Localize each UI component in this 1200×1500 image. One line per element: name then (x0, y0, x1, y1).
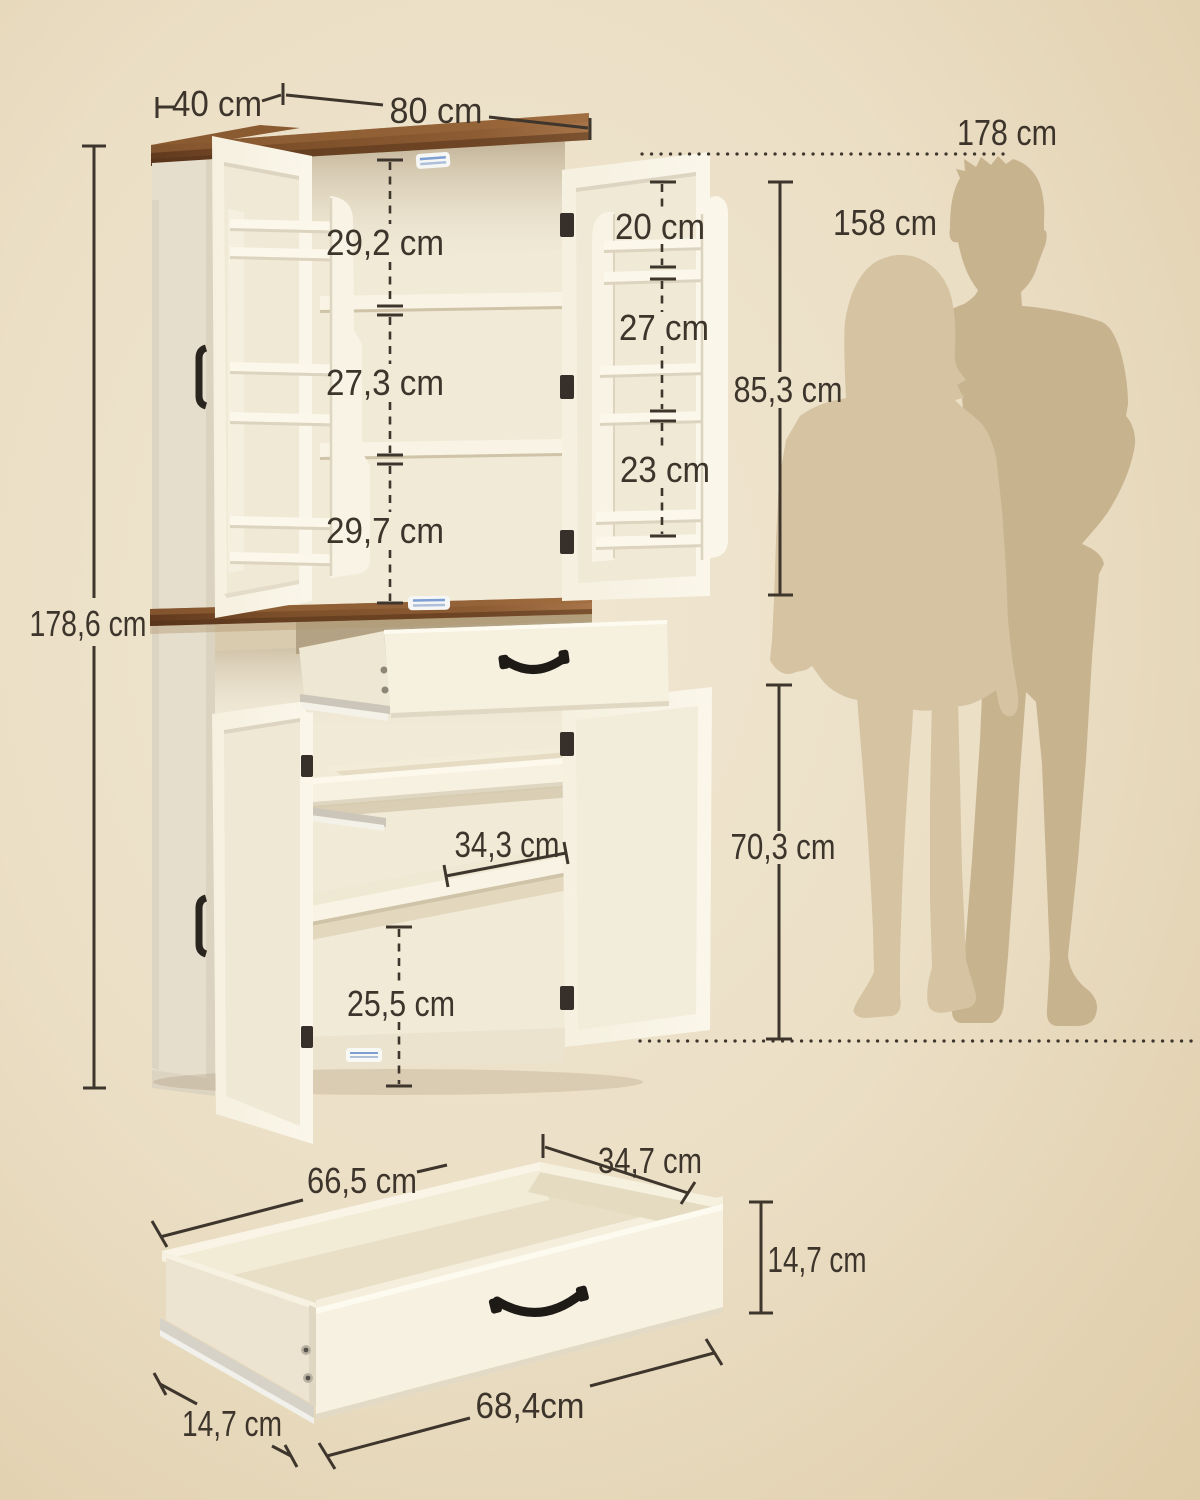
svg-text:178,6 cm: 178,6 cm (30, 603, 147, 644)
svg-text:25,5 cm: 25,5 cm (347, 983, 455, 1024)
svg-text:158 cm: 158 cm (833, 202, 937, 243)
svg-text:23 cm: 23 cm (620, 449, 710, 490)
svg-text:85,3 cm: 85,3 cm (734, 369, 843, 410)
svg-text:29,7 cm: 29,7 cm (326, 510, 444, 551)
svg-text:27,3 cm: 27,3 cm (326, 362, 444, 403)
svg-text:14,7 cm: 14,7 cm (768, 1239, 867, 1280)
svg-text:29,2 cm: 29,2 cm (326, 222, 444, 263)
svg-text:34,7 cm: 34,7 cm (598, 1140, 702, 1181)
svg-text:178 cm: 178 cm (957, 112, 1057, 153)
svg-text:14,7 cm: 14,7 cm (182, 1403, 282, 1444)
svg-text:66,5 cm: 66,5 cm (307, 1160, 417, 1201)
svg-text:34,3 cm: 34,3 cm (455, 824, 560, 865)
svg-text:40 cm: 40 cm (172, 83, 262, 124)
svg-text:68,4cm: 68,4cm (476, 1385, 585, 1426)
svg-text:80 cm: 80 cm (390, 90, 483, 131)
svg-text:20 cm: 20 cm (615, 206, 705, 247)
svg-text:27 cm: 27 cm (619, 307, 709, 348)
svg-text:70,3 cm: 70,3 cm (731, 826, 836, 867)
